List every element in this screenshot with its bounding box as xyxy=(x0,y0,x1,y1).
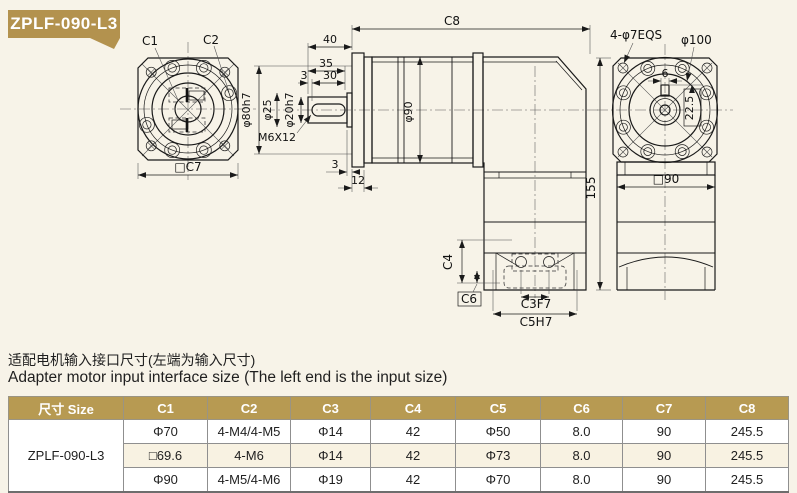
table-cell: 4-M4/4-M5 xyxy=(208,420,291,444)
dim-label-c7: □C7 xyxy=(174,160,201,174)
technical-drawing: C1 C2 □C7 M6X12 φ25 φ20h7 φ80h7 xyxy=(0,0,797,345)
col-header-c4: C4 xyxy=(371,397,456,420)
model-cell: ZPLF-090-L3 xyxy=(9,420,124,493)
table-cell: 245.5 xyxy=(706,420,789,444)
table-cell: Φ50 xyxy=(456,420,541,444)
table-cell: 245.5 xyxy=(706,468,789,493)
dim-label-sq90: □90 xyxy=(653,172,680,186)
dim-label-gap3: 3 xyxy=(332,158,339,171)
dim-label-155: 155 xyxy=(584,177,598,200)
caption-english: Adapter motor input interface size (The … xyxy=(8,369,447,387)
table-cell: Φ14 xyxy=(291,444,371,468)
front-keyway-detail xyxy=(169,88,205,132)
dim-label-c1: C1 xyxy=(142,34,158,48)
col-header-c1: C1 xyxy=(124,397,208,420)
col-header-c7: C7 xyxy=(623,397,706,420)
dim-label-c3f7: C3F7 xyxy=(521,297,552,311)
dim-label-40: 40 xyxy=(323,33,337,46)
dim-label-c5h7: C5H7 xyxy=(520,315,553,329)
table-cell: 8.0 xyxy=(541,468,623,493)
table-cell: 90 xyxy=(623,420,706,444)
table-cell: Φ73 xyxy=(456,444,541,468)
dim-label-d100: φ100 xyxy=(681,33,712,47)
table-cell: Φ19 xyxy=(291,468,371,493)
dim-label-4-d7eqs: 4-φ7EQS xyxy=(610,28,662,42)
col-header-size: 尺寸 Size xyxy=(9,397,124,420)
col-header-c5: C5 xyxy=(456,397,541,420)
model-badge: ZPLF-090-L3 xyxy=(8,10,120,38)
dim-label-d90: φ90 xyxy=(402,101,415,122)
dim-label-m6x12: M6X12 xyxy=(258,131,296,144)
dim-label-22-5: 22.5 xyxy=(683,96,696,121)
col-header-c8: C8 xyxy=(706,397,789,420)
table-cell: □69.6 xyxy=(124,444,208,468)
spec-table: 尺寸 Size C1 C2 C3 C4 C5 C6 C7 C8 ZPLF-090… xyxy=(8,396,789,493)
table-cell: 90 xyxy=(623,444,706,468)
table-cell: Φ14 xyxy=(291,420,371,444)
dim-label-d20h7: φ20h7 xyxy=(283,92,296,127)
table-cell: Φ70 xyxy=(456,468,541,493)
spec-table-header-row: 尺寸 Size C1 C2 C3 C4 C5 C6 C7 C8 xyxy=(9,397,789,420)
front-view: C1 C2 □C7 xyxy=(120,33,256,180)
dim-label-12: 12 xyxy=(351,174,365,187)
dim-label-c2: C2 xyxy=(203,33,219,47)
table-cell: 8.0 xyxy=(541,420,623,444)
dim-label-key6: 6 xyxy=(662,67,669,80)
table-cell: 245.5 xyxy=(706,444,789,468)
rear-view: 6 22.5 4-φ7EQS φ100 □90 xyxy=(597,28,733,300)
caption-chinese: 适配电机输入接口尺寸(左端为输入尺寸) xyxy=(8,350,255,370)
col-header-c3: C3 xyxy=(291,397,371,420)
table-cell: Φ70 xyxy=(124,420,208,444)
dim-label-d80h7: φ80h7 xyxy=(240,92,253,127)
table-cell: 4-M5/4-M6 xyxy=(208,468,291,493)
table-cell: 90 xyxy=(623,468,706,493)
datasheet-page: C1 C2 □C7 M6X12 φ25 φ20h7 φ80h7 xyxy=(0,0,797,493)
dim-label-c8: C8 xyxy=(444,14,460,28)
table-row: □69.6 4-M6 Φ14 42 Φ73 8.0 90 245.5 xyxy=(9,444,789,468)
table-cell: Φ90 xyxy=(124,468,208,493)
col-header-c2: C2 xyxy=(208,397,291,420)
dim-label-3: 3 xyxy=(301,69,308,82)
dim-label-d25: φ25 xyxy=(261,99,274,120)
col-header-c6: C6 xyxy=(541,397,623,420)
table-cell: 4-M6 xyxy=(208,444,291,468)
table-cell: 8.0 xyxy=(541,444,623,468)
side-view: M6X12 φ25 φ20h7 φ80h7 40 35 3 30 xyxy=(240,14,611,329)
table-row: ZPLF-090-L3 Φ70 4-M4/4-M5 Φ14 42 Φ50 8.0… xyxy=(9,420,789,444)
table-row: Φ90 4-M5/4-M6 Φ19 42 Φ70 8.0 90 245.5 xyxy=(9,468,789,493)
table-cell: 42 xyxy=(371,468,456,493)
table-cell: 42 xyxy=(371,444,456,468)
dim-label-c6: C6 xyxy=(461,292,477,306)
table-cell: 42 xyxy=(371,420,456,444)
dim-label-c4: C4 xyxy=(441,254,455,270)
dim-label-30: 30 xyxy=(323,69,337,82)
